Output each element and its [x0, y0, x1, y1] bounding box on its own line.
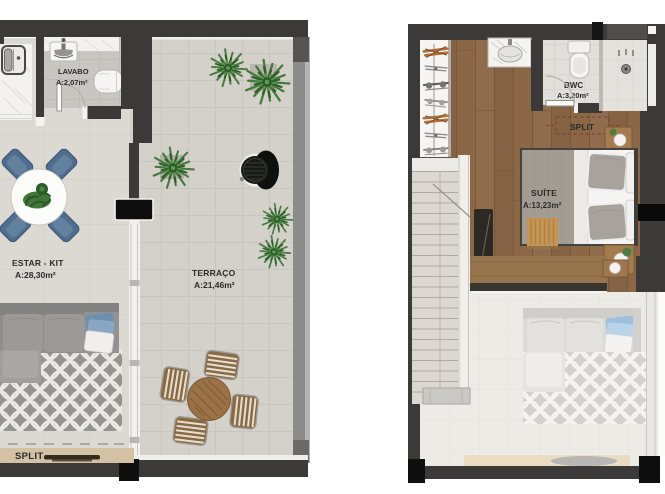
svg-text:SPLIT: SPLIT: [15, 451, 43, 462]
svg-text:A:21,46m²: A:21,46m²: [194, 280, 235, 290]
svg-text:ESTAR - KIT: ESTAR - KIT: [12, 258, 64, 268]
svg-text:LAVABO: LAVABO: [58, 67, 89, 76]
svg-text:A:28,30m²: A:28,30m²: [15, 270, 56, 280]
svg-text:A:13,23m²: A:13,23m²: [523, 201, 562, 210]
svg-text:SUÍTE: SUÍTE: [531, 188, 557, 198]
svg-text:TERRAÇO: TERRAÇO: [192, 268, 236, 278]
svg-text:SPLIT: SPLIT: [570, 122, 595, 132]
svg-text:A:2,07m²: A:2,07m²: [56, 78, 88, 87]
